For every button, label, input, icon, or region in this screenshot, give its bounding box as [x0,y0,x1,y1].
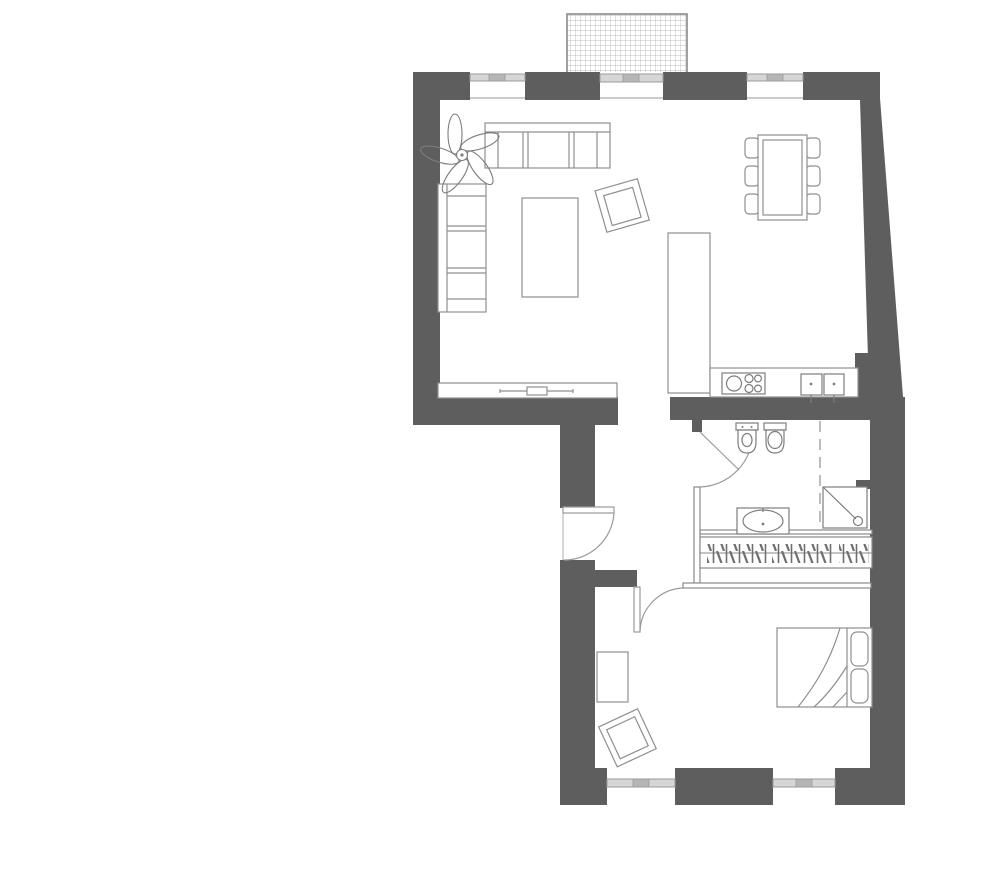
balcony-door [600,72,663,100]
tv [527,387,547,395]
sofa-two-seat [438,184,486,312]
shower [823,487,867,528]
window [470,72,525,100]
wardrobe-hanging-rail [700,537,872,568]
window [607,768,675,805]
windows-top [470,72,803,100]
washbasin-vanity [737,508,789,534]
dining-chair [806,166,820,186]
kitchen [668,233,858,403]
toilet [764,423,786,453]
living-room-furniture [419,114,650,398]
entry-door [563,507,614,560]
bathroom [736,421,867,534]
armchair [595,179,649,232]
bedroom-chair [599,709,657,767]
cooktop [722,373,765,394]
floor-plan-drawing [0,0,1000,873]
dining-table [758,135,807,220]
double-bed [777,628,872,707]
dining-furniture [745,135,820,220]
dining-chair [806,138,820,158]
dining-chair [806,194,820,214]
dining-chair [745,194,759,214]
desk [597,652,628,702]
dining-chair [745,166,759,186]
dining-chair [745,138,759,158]
bedroom-furniture [597,628,872,767]
coffee-table [522,198,578,297]
bidet [736,423,758,453]
tv-console [438,383,617,398]
window [773,768,835,805]
floor-plan [0,0,1000,873]
window [747,72,803,100]
balcony-grating [567,14,687,73]
kitchen-island [668,233,710,393]
bedroom-door [634,587,683,632]
sofa-three-seat [485,123,610,168]
